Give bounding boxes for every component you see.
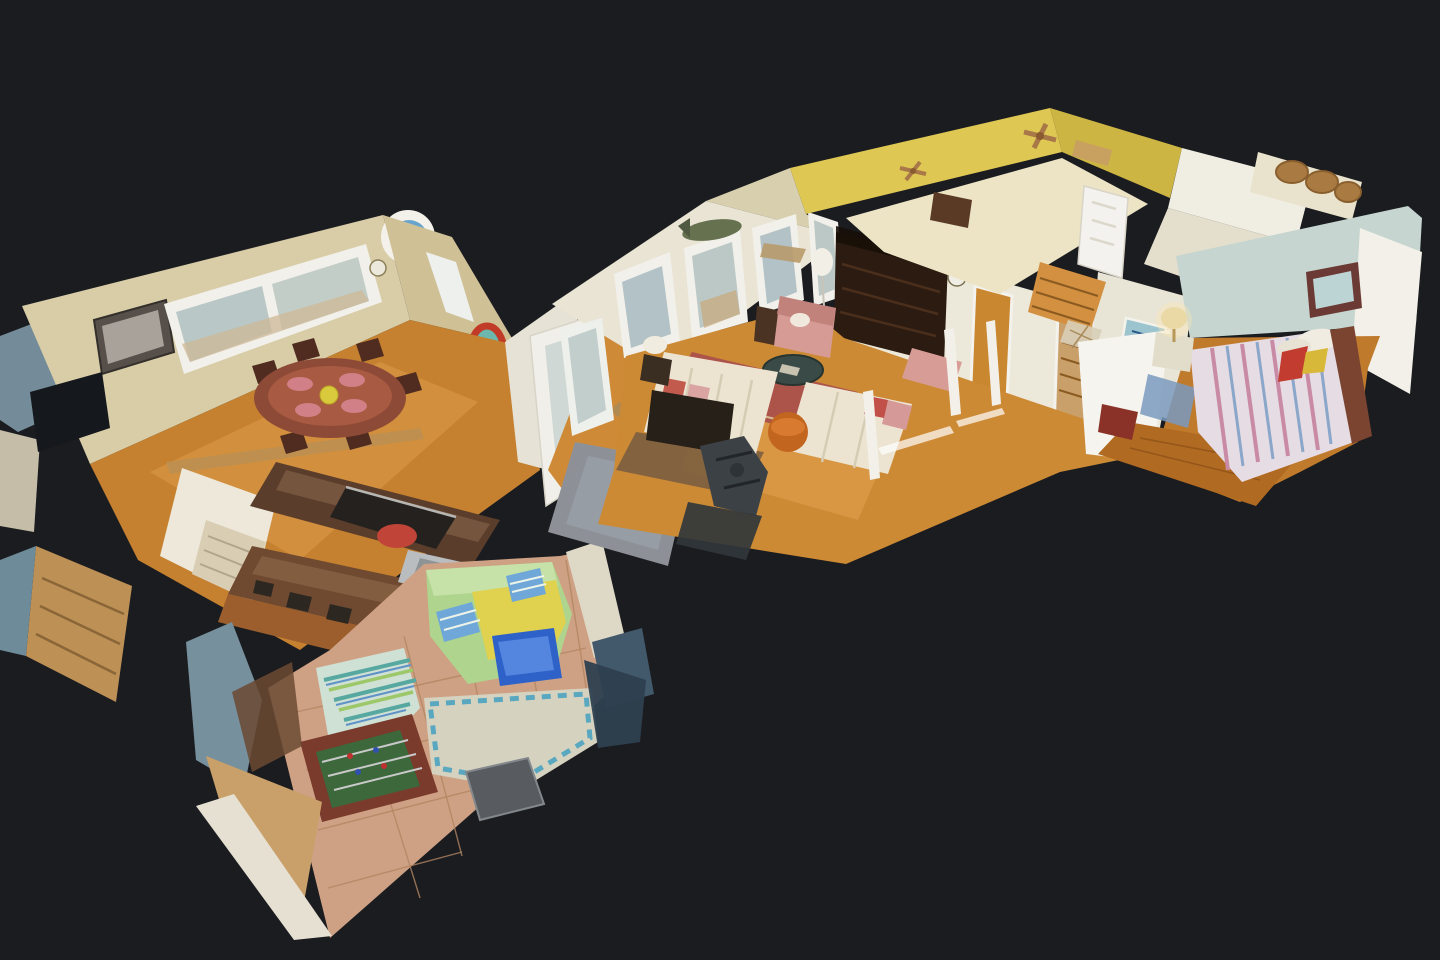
placemat: [287, 377, 313, 391]
foosball-player: [355, 769, 361, 775]
placemat: [341, 399, 367, 413]
armchair-pillow: [790, 313, 810, 327]
exercise-seat: [730, 463, 744, 477]
fruit-bowl: [320, 386, 338, 404]
wicker-basket: [1306, 171, 1338, 193]
bedside-lamp: [1161, 307, 1187, 329]
red-pot: [377, 524, 417, 548]
table-lamp-shade: [643, 336, 667, 354]
dining-clock: [370, 260, 386, 276]
foosball-player: [381, 763, 387, 769]
placemat: [339, 373, 365, 387]
floor-lamp-shade: [811, 248, 833, 276]
placemat: [295, 403, 321, 417]
ceiling-fan-hub: [1036, 132, 1044, 140]
dollhouse-3d-viewport[interactable]: [0, 0, 1440, 960]
blue-bench-top: [498, 636, 554, 676]
wicker-basket: [1276, 161, 1308, 183]
foosball-player: [373, 747, 379, 753]
dollhouse-scene: [0, 0, 1440, 960]
ceiling-fan-hub: [910, 168, 916, 174]
cut-debris-tan-left: [0, 430, 40, 532]
hall-door: [1078, 186, 1128, 278]
wicker-basket: [1335, 182, 1361, 202]
orange-table-top: [771, 418, 805, 436]
foosball-player: [347, 753, 353, 759]
